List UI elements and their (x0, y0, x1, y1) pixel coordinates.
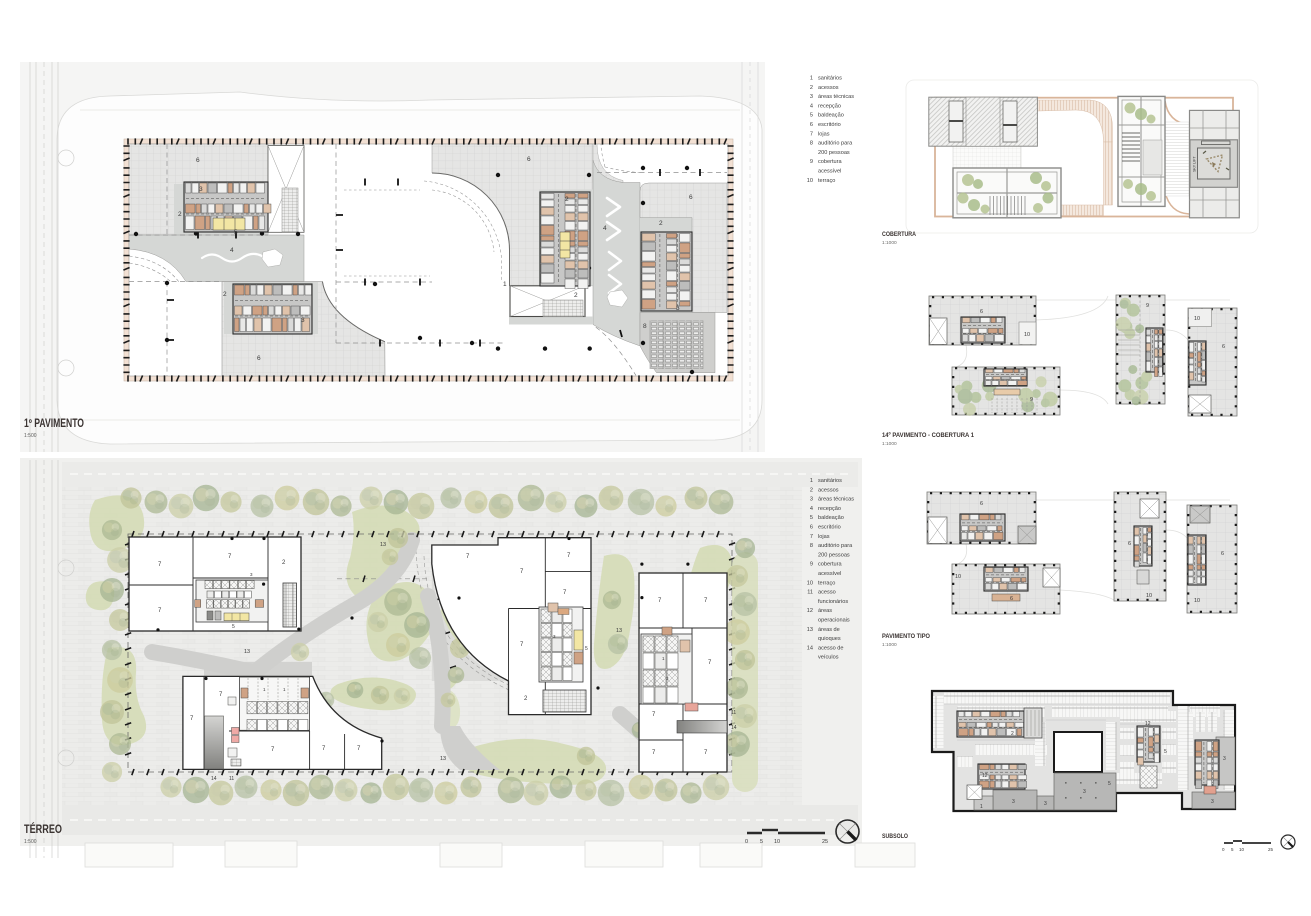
svg-text:1:1000: 1:1000 (882, 642, 897, 648)
svg-text:2: 2 (810, 487, 813, 493)
svg-text:9: 9 (1146, 303, 1149, 309)
svg-text:7: 7 (810, 534, 813, 540)
svg-text:200 pessoas: 200 pessoas (818, 552, 850, 558)
svg-text:5: 5 (1164, 749, 1167, 755)
svg-text:4: 4 (603, 225, 607, 232)
svg-text:6: 6 (810, 525, 813, 531)
svg-text:6: 6 (689, 194, 693, 201)
svg-text:11: 11 (731, 710, 736, 716)
svg-text:8: 8 (810, 141, 813, 147)
svg-text:3: 3 (1083, 789, 1086, 795)
svg-text:14º PAVIMENTO - COBERTURA 1: 14º PAVIMENTO - COBERTURA 1 (882, 433, 975, 439)
svg-text:6: 6 (1222, 344, 1225, 350)
svg-text:9: 9 (810, 562, 813, 568)
svg-text:5: 5 (760, 839, 763, 845)
svg-text:8: 8 (643, 323, 647, 330)
svg-text:1º PAVIMENTO: 1º PAVIMENTO (24, 418, 84, 430)
svg-text:13: 13 (616, 628, 622, 634)
svg-text:acessos: acessos (818, 85, 839, 91)
svg-text:13: 13 (244, 649, 250, 655)
svg-text:áreas de: áreas de (818, 627, 840, 633)
svg-text:3: 3 (810, 497, 813, 503)
svg-text:2: 2 (1011, 731, 1014, 737)
svg-text:3: 3 (810, 94, 813, 100)
svg-text:3: 3 (1012, 799, 1015, 805)
svg-text:6: 6 (196, 157, 200, 164)
svg-text:TÉRREO: TÉRREO (24, 823, 62, 836)
svg-text:7: 7 (810, 131, 813, 137)
svg-text:veículos: veículos (818, 655, 839, 661)
svg-text:acesso: acesso (818, 590, 836, 596)
svg-text:áreas: áreas (818, 608, 832, 614)
svg-text:6: 6 (980, 501, 983, 507)
svg-text:quioques: quioques (818, 636, 841, 642)
svg-text:5: 5 (810, 515, 813, 521)
svg-text:6: 6 (257, 355, 261, 362)
svg-text:2: 2 (810, 85, 813, 91)
svg-text:1:500: 1:500 (24, 433, 37, 439)
svg-text:acessível: acessível (818, 169, 841, 175)
svg-text:10: 10 (1239, 847, 1245, 852)
svg-text:baldeação: baldeação (818, 515, 844, 521)
svg-text:áreas técnicas: áreas técnicas (818, 94, 854, 100)
svg-text:10: 10 (1194, 598, 1200, 604)
svg-text:2: 2 (574, 292, 578, 299)
svg-text:8: 8 (810, 543, 813, 549)
svg-text:3: 3 (676, 305, 680, 312)
svg-text:13: 13 (380, 542, 386, 548)
svg-text:13: 13 (440, 756, 446, 762)
svg-text:10: 10 (807, 580, 813, 586)
svg-text:9: 9 (810, 159, 813, 165)
svg-text:3: 3 (1044, 801, 1047, 807)
svg-text:6: 6 (810, 122, 813, 128)
svg-text:3: 3 (1223, 756, 1226, 762)
svg-text:1: 1 (810, 478, 813, 484)
svg-text:5: 5 (810, 113, 813, 119)
svg-text:6: 6 (1010, 596, 1013, 602)
svg-text:14: 14 (807, 645, 813, 651)
svg-text:5: 5 (234, 229, 238, 236)
svg-text:terraço: terraço (818, 178, 835, 184)
svg-text:1: 1 (810, 76, 813, 82)
svg-text:COBERTURA: COBERTURA (882, 231, 916, 238)
svg-text:áreas técnicas: áreas técnicas (818, 497, 854, 503)
svg-text:3: 3 (1211, 799, 1214, 805)
svg-text:6: 6 (980, 309, 983, 315)
svg-text:10: 10 (807, 178, 813, 184)
svg-text:0: 0 (745, 839, 748, 845)
svg-text:cobertura: cobertura (818, 562, 843, 568)
svg-text:12: 12 (1145, 721, 1151, 727)
svg-text:sanitários: sanitários (818, 478, 842, 484)
svg-text:cobertura: cobertura (818, 159, 843, 165)
svg-text:6: 6 (1221, 551, 1224, 557)
svg-text:1: 1 (980, 804, 983, 810)
svg-text:recepção: recepção (818, 103, 841, 109)
svg-text:10: 10 (774, 839, 780, 845)
svg-text:acessos: acessos (818, 487, 839, 493)
svg-text:lojas: lojas (818, 131, 830, 137)
svg-text:13: 13 (807, 627, 813, 633)
svg-text:2: 2 (659, 220, 663, 227)
svg-text:12: 12 (807, 608, 813, 614)
svg-text:10: 10 (1146, 593, 1152, 599)
svg-text:SUBSOLO: SUBSOLO (882, 834, 908, 840)
svg-text:11: 11 (229, 776, 234, 782)
svg-text:escritório: escritório (818, 525, 841, 531)
svg-text:11: 11 (807, 590, 813, 596)
svg-text:5: 5 (232, 624, 235, 630)
svg-text:terraço: terraço (818, 580, 835, 586)
svg-text:14: 14 (211, 776, 217, 782)
svg-text:2: 2 (223, 291, 227, 298)
svg-text:PAVIMENTO TIPO: PAVIMENTO TIPO (882, 634, 930, 640)
svg-text:3: 3 (301, 317, 305, 324)
svg-text:12: 12 (982, 773, 988, 779)
svg-text:25: 25 (822, 839, 828, 845)
svg-text:auditório para: auditório para (818, 141, 853, 147)
svg-text:baldeação: baldeação (818, 113, 844, 119)
svg-text:6: 6 (1128, 541, 1131, 547)
svg-text:2: 2 (565, 196, 569, 203)
svg-text:sanitários: sanitários (818, 76, 842, 82)
svg-text:recepção: recepção (818, 506, 841, 512)
svg-text:14: 14 (731, 725, 737, 731)
svg-text:escritório: escritório (818, 122, 841, 128)
svg-text:1:500: 1:500 (24, 839, 37, 845)
svg-text:6: 6 (527, 156, 531, 163)
svg-text:acesso de: acesso de (818, 645, 844, 651)
svg-text:SKY LIFT: SKY LIFT (1193, 156, 1197, 172)
svg-text:10: 10 (1194, 316, 1200, 322)
svg-text:4: 4 (810, 506, 813, 512)
svg-text:200 pessoas: 200 pessoas (818, 150, 850, 156)
svg-text:5: 5 (1108, 781, 1111, 787)
svg-text:1: 1 (503, 281, 507, 288)
svg-text:1:1000: 1:1000 (882, 240, 897, 246)
svg-text:acessível: acessível (818, 571, 841, 577)
svg-text:funcionários: funcionários (818, 599, 848, 605)
svg-text:4: 4 (810, 103, 813, 109)
svg-text:2: 2 (178, 211, 182, 218)
svg-text:4: 4 (230, 247, 234, 254)
svg-text:lojas: lojas (818, 534, 830, 540)
svg-text:10: 10 (955, 574, 961, 580)
svg-text:9: 9 (1030, 397, 1033, 403)
svg-text:1:1000: 1:1000 (882, 441, 897, 447)
svg-text:5: 5 (585, 646, 588, 652)
svg-text:25: 25 (1268, 847, 1274, 852)
svg-text:10: 10 (1024, 332, 1030, 338)
svg-text:3: 3 (199, 186, 203, 193)
svg-text:auditório para: auditório para (818, 543, 853, 549)
svg-text:operacionais: operacionais (818, 618, 850, 624)
